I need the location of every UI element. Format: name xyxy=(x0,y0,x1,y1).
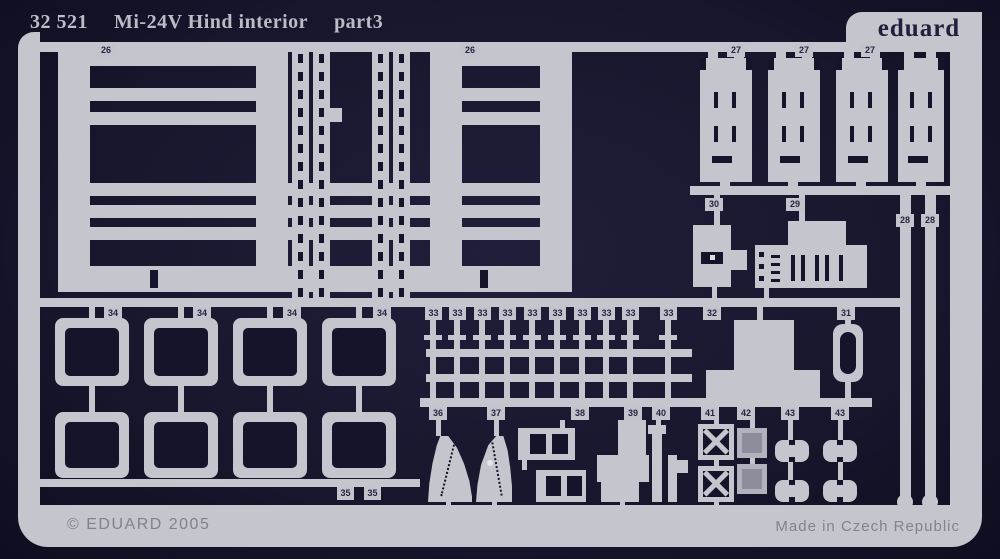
part-stem xyxy=(714,502,719,510)
part-number-tag-42: 42 xyxy=(737,407,755,420)
part-number-tag-33: 33 xyxy=(499,307,516,320)
part-number-tag-34: 34 xyxy=(373,307,391,320)
part-number-tag-28: 28 xyxy=(896,214,914,227)
part-number-tag-35: 35 xyxy=(337,487,354,500)
part-number-tag-37: 37 xyxy=(487,407,505,420)
part-37-curved-gusset xyxy=(476,436,512,502)
etch-window xyxy=(546,476,561,496)
part-number-tag-38: 38 xyxy=(571,407,589,420)
part-number-tag-33: 33 xyxy=(425,307,442,320)
photoetch-sheet-photo: 32 521 Mi-24V Hind interior part3 eduard… xyxy=(0,0,1000,559)
part-number-tag-40: 40 xyxy=(652,407,670,420)
part-stem xyxy=(560,420,565,428)
part-number-tag-33: 33 xyxy=(598,307,615,320)
etch-window xyxy=(552,434,568,454)
part-number-tag-34: 34 xyxy=(104,307,122,320)
part-number-tag-33: 33 xyxy=(660,307,677,320)
clip-notch xyxy=(789,480,795,485)
etch-rivet-line xyxy=(491,442,502,496)
part-number-tag-27: 27 xyxy=(727,44,745,57)
part-stem xyxy=(494,420,499,436)
part-stem xyxy=(788,462,793,480)
clip-notch xyxy=(837,480,843,485)
part-number-tag-31: 31 xyxy=(837,307,855,320)
part-number-tag-26: 26 xyxy=(460,44,480,57)
part-number-tag-33: 33 xyxy=(524,307,541,320)
part-number-tag-34: 34 xyxy=(193,307,211,320)
sheet-title: 32 521 Mi-24V Hind interior part3 xyxy=(30,11,383,34)
part-40-tab xyxy=(677,460,688,473)
part-39-stepped-block xyxy=(601,482,639,502)
part-number-tag-33: 33 xyxy=(622,307,639,320)
part-stem xyxy=(436,420,441,436)
clip-notch xyxy=(837,497,843,502)
part-stem xyxy=(788,420,793,440)
clip-notch xyxy=(789,497,795,502)
part-number-tag-26: 26 xyxy=(96,44,116,57)
etch-rivet-line xyxy=(440,442,455,497)
pad-inner xyxy=(742,469,762,489)
part-stem xyxy=(446,502,451,510)
part-stem xyxy=(838,462,843,480)
part-40-strip xyxy=(668,455,677,502)
part-number-tag-29: 29 xyxy=(786,198,804,211)
part-stem xyxy=(838,420,843,440)
part-number-tag-43: 43 xyxy=(781,407,799,420)
part-number-tag-27: 27 xyxy=(861,44,879,57)
part-number-tag-43: 43 xyxy=(831,407,849,420)
etch-rivet xyxy=(487,460,493,466)
part-number-tag-35: 35 xyxy=(364,487,381,500)
part-39-stepped-block xyxy=(597,455,649,482)
part-36-curved-gusset xyxy=(428,436,472,502)
part-number-tag-33: 33 xyxy=(574,307,591,320)
clip-notch xyxy=(837,440,843,445)
part-suffix: part3 xyxy=(334,11,383,34)
part-stem xyxy=(750,420,755,428)
part-number-tag-36: 36 xyxy=(429,407,447,420)
part-number-tag-39: 39 xyxy=(624,407,642,420)
part-number-tag-30: 30 xyxy=(705,198,723,211)
part-40-strip xyxy=(652,425,662,502)
part-number-tag-27: 27 xyxy=(795,44,813,57)
clip-notch xyxy=(789,440,795,445)
part-number-tag-33: 33 xyxy=(549,307,566,320)
part-stem xyxy=(492,502,497,510)
kit-title: Mi-24V Hind interior xyxy=(114,11,308,34)
pad-inner xyxy=(742,433,762,453)
part-stem xyxy=(620,502,625,510)
part-stem xyxy=(522,460,527,470)
part-number-tag-33: 33 xyxy=(449,307,466,320)
part-number-tag-34: 34 xyxy=(283,307,301,320)
bottom-parts-row: 36 37 38 39 40 41 42 43 43 xyxy=(0,0,1000,559)
etch-window xyxy=(530,434,546,454)
part-39-stepped-block xyxy=(618,420,646,457)
etch-window xyxy=(567,476,582,496)
part-number-tag-32: 32 xyxy=(703,307,721,320)
part-number-tag-41: 41 xyxy=(701,407,719,420)
brand-logo-text: eduard xyxy=(868,15,970,43)
catalog-number: 32 521 xyxy=(30,11,88,34)
part-number-tag-33: 33 xyxy=(474,307,491,320)
part-number-tag-28: 28 xyxy=(921,214,939,227)
